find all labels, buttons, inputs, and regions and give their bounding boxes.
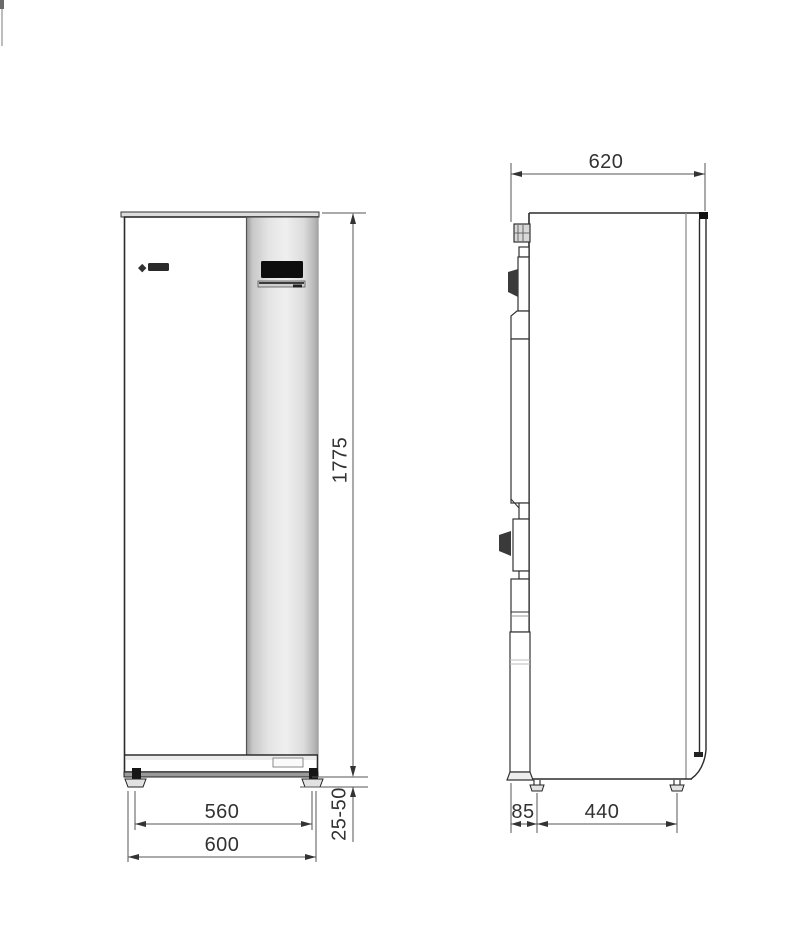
dim-rear-offset-label: 85 <box>511 801 534 823</box>
arrowhead-left <box>537 821 548 827</box>
arrowhead-left <box>511 171 522 177</box>
arrowhead-left <box>128 854 139 860</box>
arrowhead-right <box>301 821 312 827</box>
front-right-foot-pad <box>302 779 323 787</box>
door-top-cap <box>699 212 708 219</box>
display-unit <box>258 261 305 288</box>
arrowhead-up <box>350 213 356 224</box>
rating-label <box>273 758 303 767</box>
rear-handle-1 <box>508 269 518 297</box>
control-knob-tab <box>293 285 302 288</box>
side-front-foot <box>670 780 684 791</box>
rear-box-2 <box>513 519 529 571</box>
arrowhead-left <box>135 821 146 827</box>
dim-depth-label: 620 <box>589 151 624 173</box>
dimension-drawing: ◆ 1775 <box>0 0 800 950</box>
foot-pad <box>670 785 684 791</box>
rear-handle-2 <box>499 531 511 556</box>
rear-step-3 <box>519 571 529 579</box>
side-front-door <box>691 212 708 779</box>
dim-foot-adjust-label: 25-50 <box>328 787 350 841</box>
rear-step-1 <box>519 247 529 257</box>
dimension-feet-spacing: 440 <box>537 793 677 833</box>
side-view <box>499 212 708 791</box>
foot-pad <box>530 785 544 791</box>
scan-artifact-mark <box>0 0 4 9</box>
dim-height-label: 1775 <box>329 437 351 484</box>
rear-panel-upper <box>511 339 529 503</box>
front-base-strip <box>124 772 318 777</box>
door-bottom-mark <box>694 752 703 757</box>
front-left-foot-pad <box>125 779 146 787</box>
pipe-fitting <box>514 224 530 242</box>
rear-step-2 <box>519 503 529 519</box>
rear-chamfer-box <box>511 311 529 339</box>
side-rear-foot <box>530 780 544 791</box>
front-view: ◆ <box>121 212 323 787</box>
rear-box-1 <box>518 257 529 311</box>
dimension-height: 1775 <box>322 213 366 777</box>
drawing-page: ◆ 1775 <box>0 0 800 950</box>
dim-feet-width-label: 560 <box>205 801 240 823</box>
front-left-foot-bracket <box>132 768 141 779</box>
dim-feet-spacing-label: 440 <box>585 801 620 823</box>
dim-overall-width-label: 600 <box>205 834 240 856</box>
front-gray-panel <box>247 218 318 755</box>
rear-panel-lower <box>510 632 530 772</box>
arrowhead-up <box>350 787 356 797</box>
arrowhead-right <box>694 171 705 177</box>
arrowhead-down <box>350 766 356 777</box>
dimension-depth: 620 <box>511 151 705 222</box>
display-screen <box>261 261 303 278</box>
arrowhead-right <box>666 821 677 827</box>
brand-logo-wordmark <box>148 263 169 271</box>
arrowhead-right <box>305 854 316 860</box>
brand-logo-icon: ◆ <box>138 262 147 274</box>
rear-panel-base-flare <box>507 772 533 780</box>
dimension-foot-adjust: 25-50 <box>300 777 368 842</box>
dimension-feet-width: 560 <box>135 791 312 830</box>
rear-box-3 <box>511 579 529 632</box>
scan-artifact <box>0 0 4 46</box>
side-rear-connections <box>499 224 533 780</box>
